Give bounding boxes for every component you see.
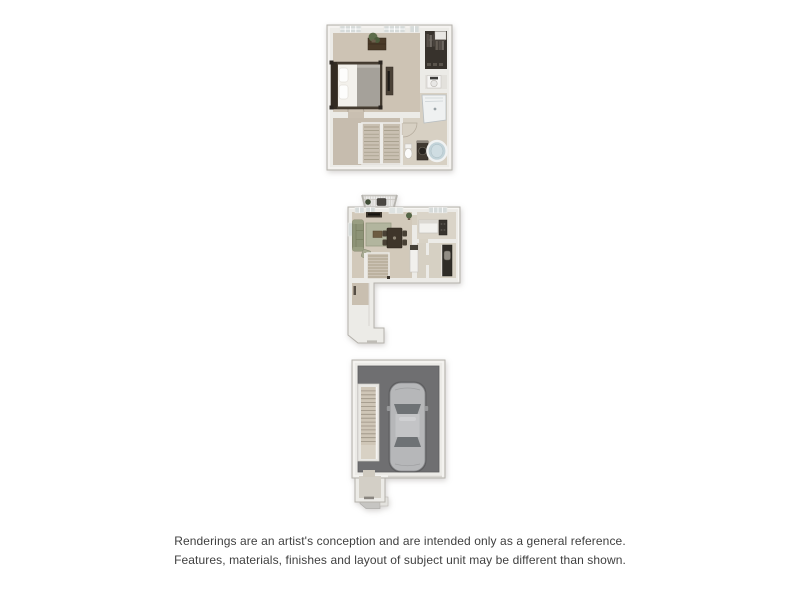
garage-level-plan bbox=[351, 357, 447, 510]
bathtub bbox=[427, 141, 446, 161]
balcony-plant bbox=[365, 199, 371, 205]
disclaimer-line-2: Features, materials, finishes and layout… bbox=[0, 551, 800, 570]
kitchen-counter-center bbox=[410, 245, 418, 272]
stacked-washer-dryer bbox=[427, 76, 441, 89]
upper-floor-plan bbox=[324, 19, 456, 178]
shower bbox=[422, 95, 446, 123]
balcony-railing bbox=[362, 195, 397, 207]
upper-staircase bbox=[358, 123, 401, 164]
kitchen-island bbox=[419, 220, 438, 233]
disclaimer: Renderings are an artist's conception an… bbox=[0, 532, 800, 569]
tv-console bbox=[366, 212, 382, 218]
balcony-grill bbox=[377, 199, 386, 206]
main-staircase bbox=[364, 253, 390, 279]
range bbox=[439, 220, 447, 235]
car bbox=[387, 382, 428, 473]
floor-plan-page: Renderings are an artist's conception an… bbox=[0, 0, 800, 600]
coffee-table bbox=[373, 231, 382, 238]
bed bbox=[330, 61, 383, 110]
media-chest bbox=[386, 67, 393, 95]
kitchen-counter-right bbox=[442, 245, 452, 276]
disclaimer-line-1: Renderings are an artist's conception an… bbox=[0, 532, 800, 551]
garage-staircase bbox=[358, 384, 379, 461]
toilet bbox=[405, 144, 412, 159]
balcony-door bbox=[389, 207, 403, 213]
main-floor-plan bbox=[347, 193, 463, 345]
sofa bbox=[353, 220, 364, 251]
